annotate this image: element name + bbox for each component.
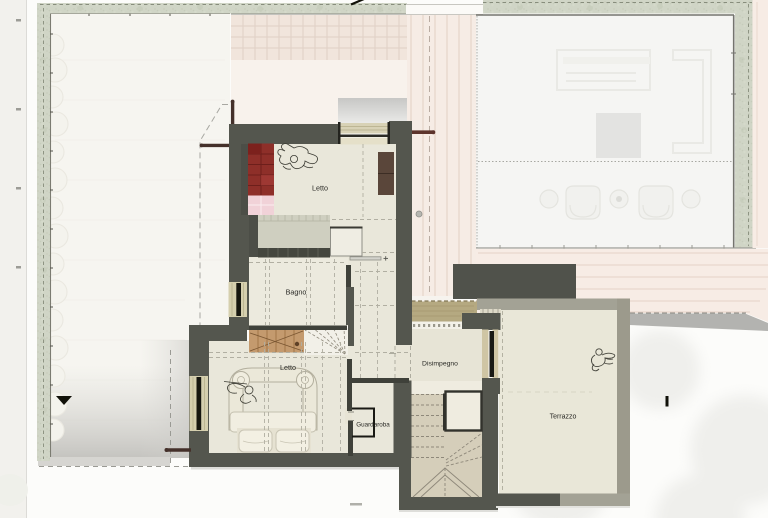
svg-text:Letto: Letto bbox=[280, 363, 296, 372]
svg-text:Letto: Letto bbox=[312, 184, 328, 193]
svg-text:Bagno: Bagno bbox=[286, 288, 307, 297]
svg-text:Terrazzo: Terrazzo bbox=[550, 414, 577, 421]
svg-text:Disimpegno: Disimpegno bbox=[422, 361, 458, 368]
